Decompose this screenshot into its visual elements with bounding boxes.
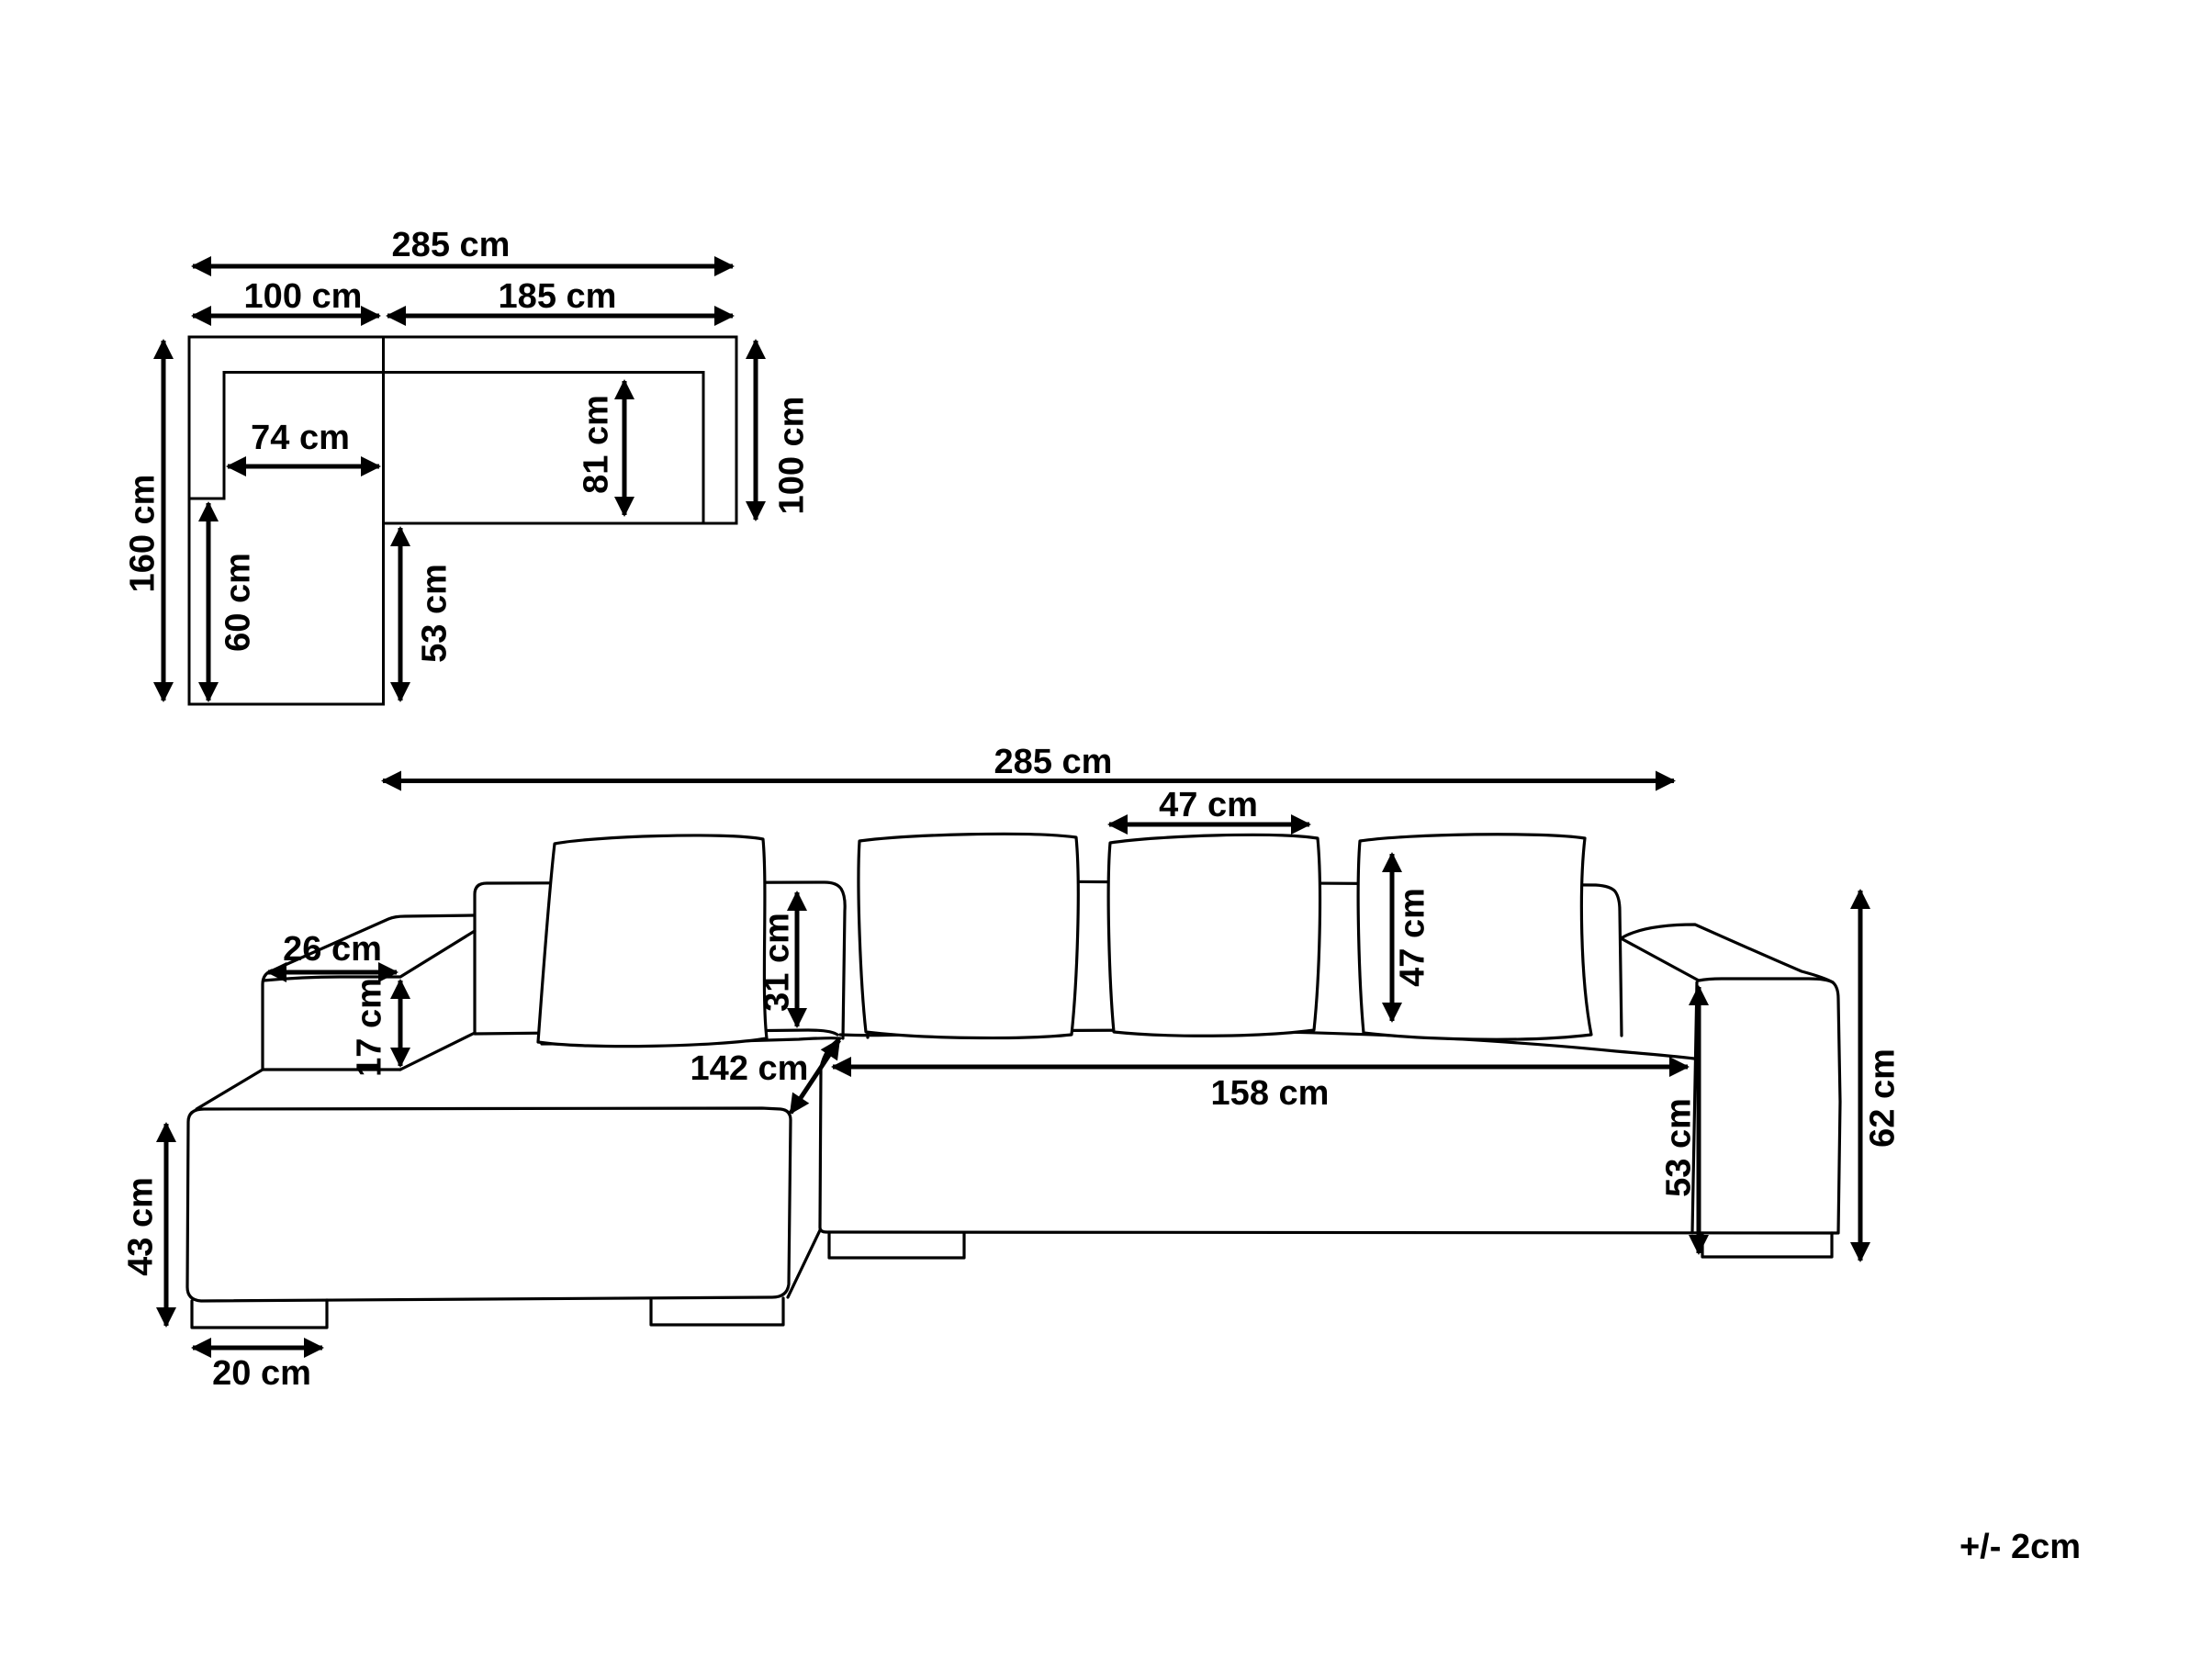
svg-text:31 cm: 31 cm xyxy=(758,913,797,1012)
svg-text:+/- 2cm: +/- 2cm xyxy=(1959,1528,2081,1566)
svg-text:17 cm: 17 cm xyxy=(351,978,389,1077)
svg-text:100 cm: 100 cm xyxy=(773,397,812,515)
svg-text:53 cm: 53 cm xyxy=(416,564,455,663)
svg-text:62 cm: 62 cm xyxy=(1864,1048,1903,1148)
svg-text:285 cm: 285 cm xyxy=(994,743,1113,781)
svg-text:60 cm: 60 cm xyxy=(219,553,258,652)
svg-text:20 cm: 20 cm xyxy=(212,1354,311,1393)
svg-text:185 cm: 185 cm xyxy=(499,277,617,316)
svg-text:47 cm: 47 cm xyxy=(1159,786,1258,824)
svg-text:47 cm: 47 cm xyxy=(1394,888,1432,987)
svg-text:53 cm: 53 cm xyxy=(1660,1098,1699,1197)
svg-text:160 cm: 160 cm xyxy=(124,475,163,593)
svg-text:74 cm: 74 cm xyxy=(251,419,350,457)
svg-text:26 cm: 26 cm xyxy=(283,930,382,969)
svg-text:142 cm: 142 cm xyxy=(691,1049,809,1088)
svg-text:158 cm: 158 cm xyxy=(1211,1074,1330,1113)
svg-text:43 cm: 43 cm xyxy=(122,1177,161,1276)
svg-text:81 cm: 81 cm xyxy=(578,395,616,494)
svg-text:285 cm: 285 cm xyxy=(392,226,511,264)
svg-text:100 cm: 100 cm xyxy=(244,277,363,316)
